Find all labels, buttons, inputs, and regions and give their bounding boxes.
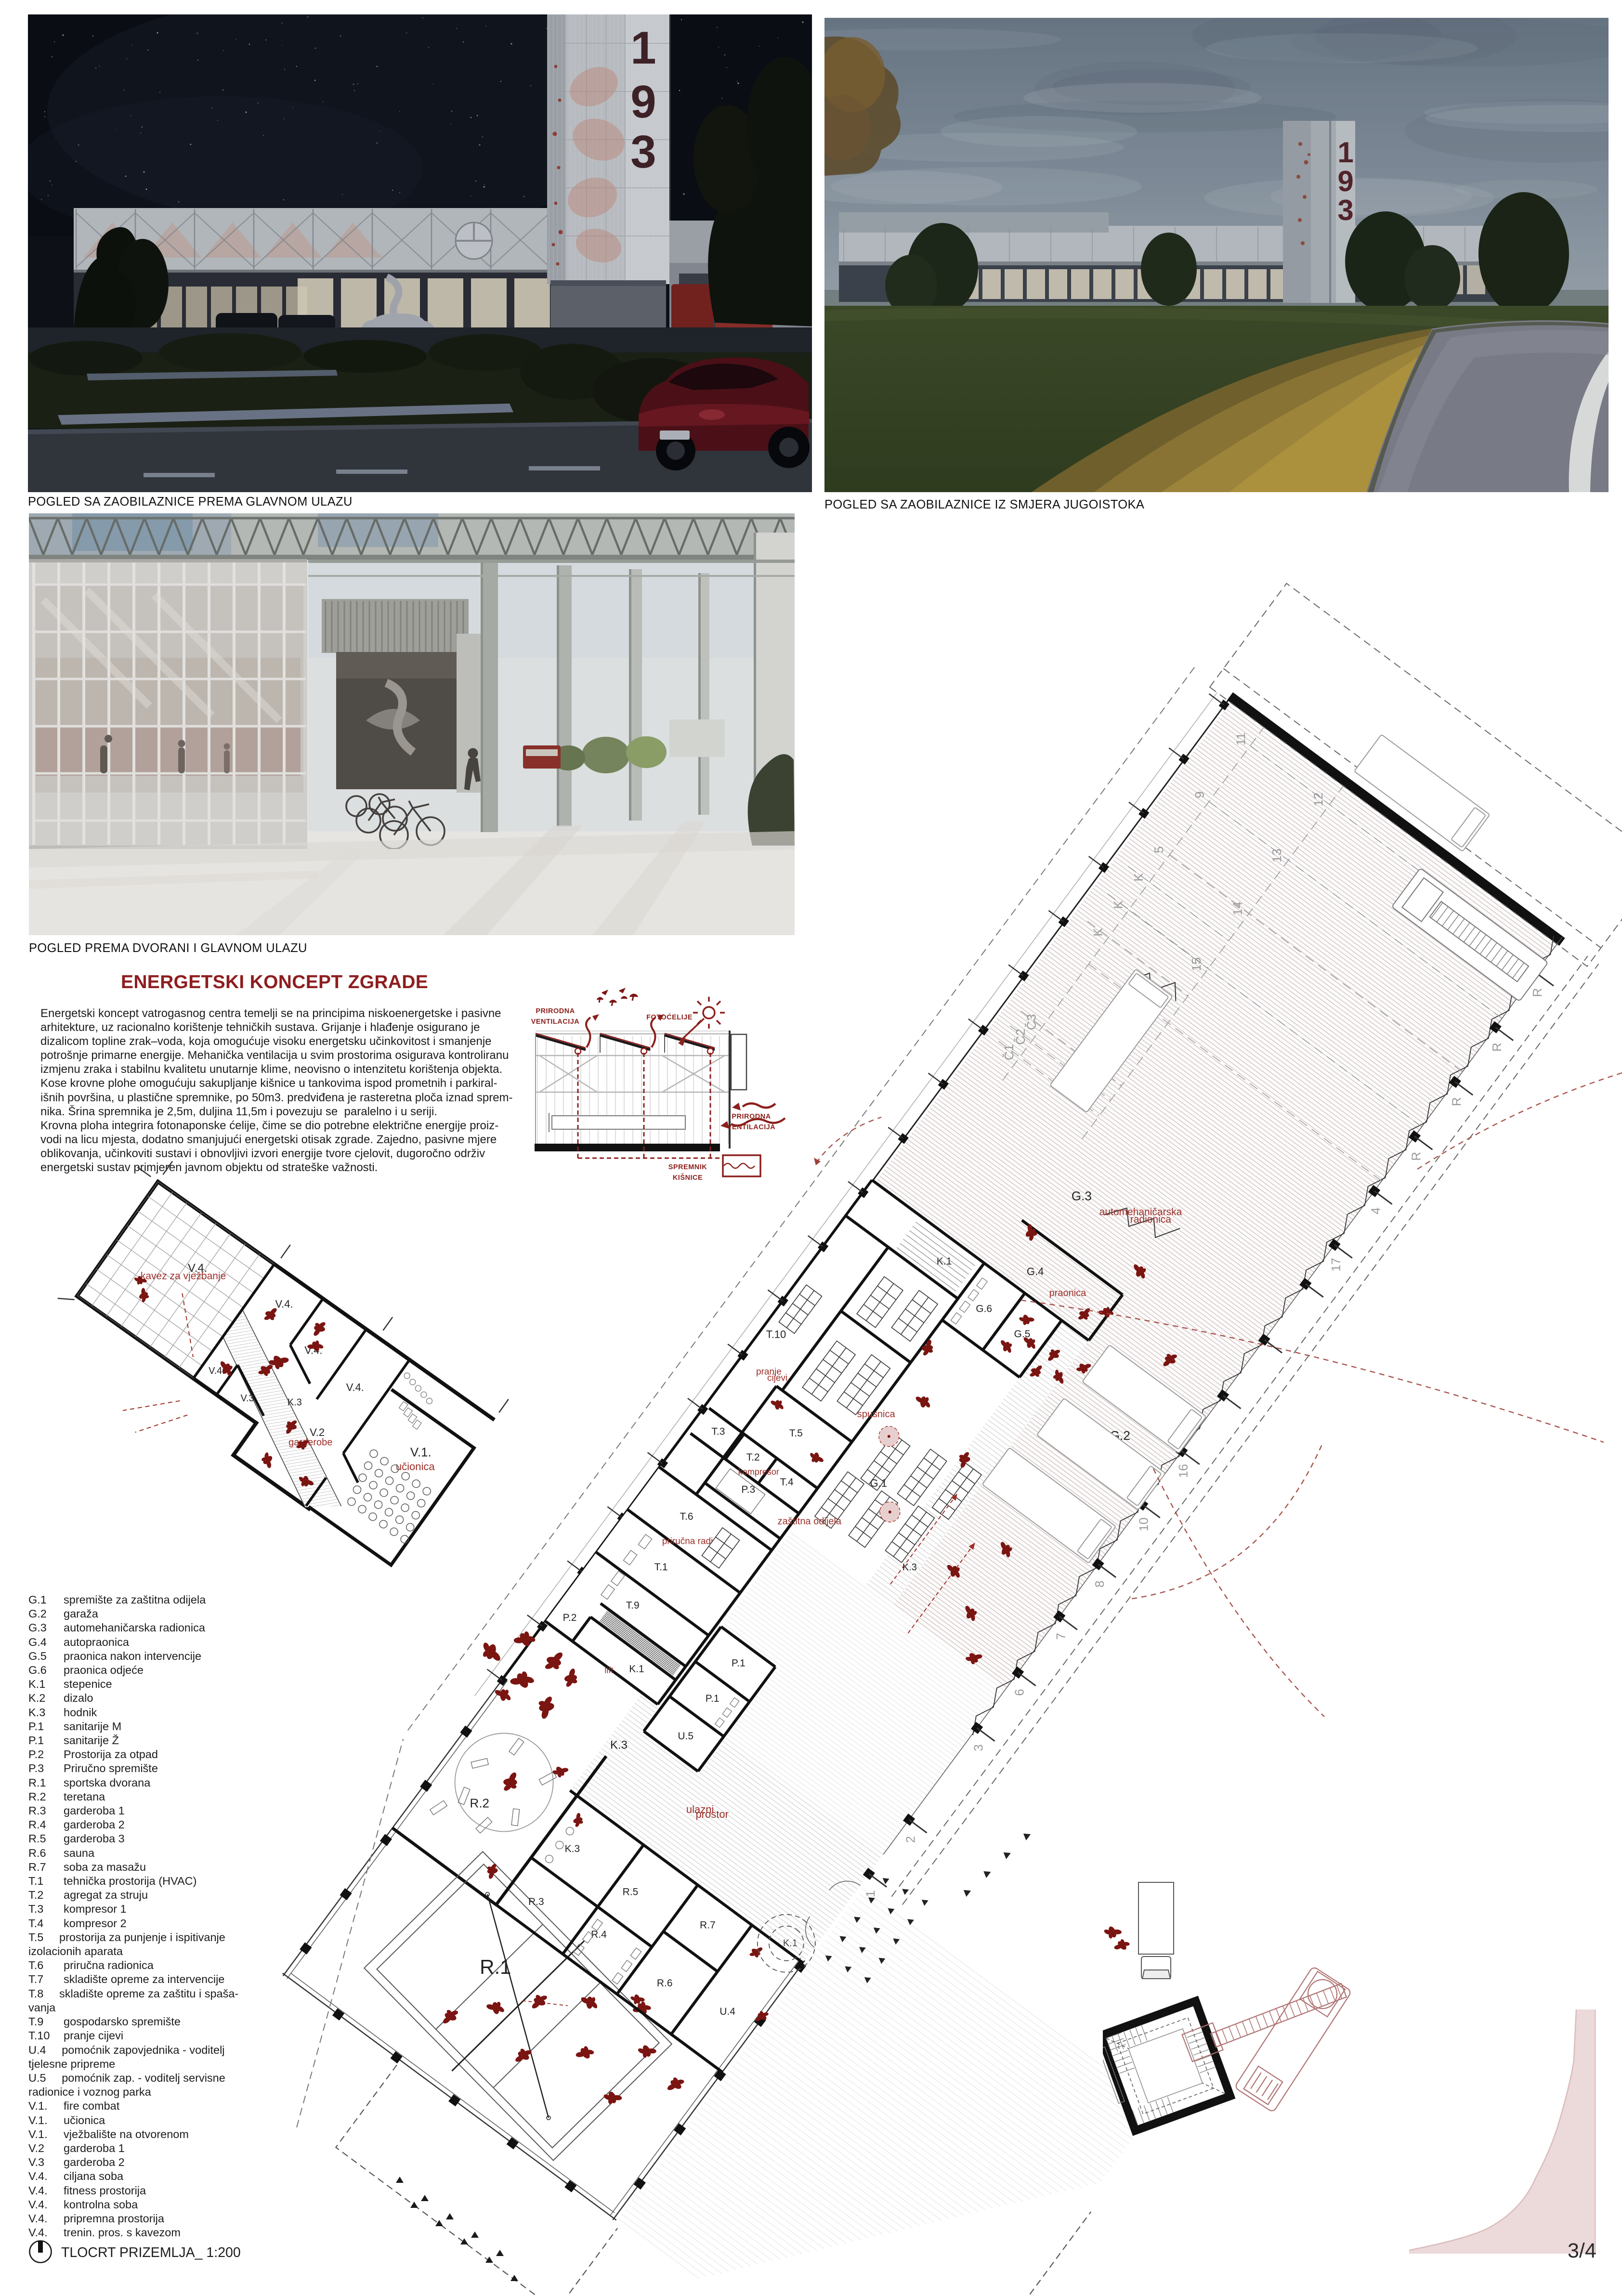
svg-text:K.3: K.3 bbox=[903, 1562, 917, 1573]
svg-text:6: 6 bbox=[1012, 1689, 1026, 1696]
svg-text:15: 15 bbox=[1189, 957, 1203, 971]
svg-text:G.3: G.3 bbox=[1072, 1189, 1092, 1203]
svg-text:VENTILACIJA: VENTILACIJA bbox=[727, 1123, 776, 1131]
svg-text:K: K bbox=[1090, 927, 1105, 936]
svg-text:11: 11 bbox=[1233, 732, 1248, 745]
svg-text:R.7: R.7 bbox=[700, 1919, 716, 1931]
svg-text:R: R bbox=[1449, 1097, 1464, 1106]
svg-text:V.2: V.2 bbox=[310, 1426, 325, 1438]
svg-text:garderobe: garderobe bbox=[288, 1437, 332, 1448]
svg-text:3: 3 bbox=[971, 1744, 985, 1751]
svg-text:T.9: T.9 bbox=[626, 1600, 640, 1611]
svg-text:G.4: G.4 bbox=[1027, 1265, 1044, 1278]
svg-text:12: 12 bbox=[1311, 793, 1325, 807]
svg-text:T.2: T.2 bbox=[746, 1452, 760, 1463]
svg-text:T.5: T.5 bbox=[789, 1428, 803, 1439]
svg-text:U.4: U.4 bbox=[719, 2006, 735, 2017]
svg-text:R.5: R.5 bbox=[623, 1886, 639, 1897]
svg-text:2: 2 bbox=[903, 1836, 917, 1843]
svg-text:G.6: G.6 bbox=[976, 1304, 992, 1315]
svg-text:K.1: K.1 bbox=[783, 1938, 798, 1949]
svg-text:R: R bbox=[1530, 988, 1544, 997]
svg-text:U.5: U.5 bbox=[678, 1731, 693, 1742]
svg-text:R.1: R.1 bbox=[480, 1956, 511, 1978]
svg-text:V.3: V.3 bbox=[240, 1393, 254, 1404]
svg-text:1: 1 bbox=[863, 1890, 877, 1897]
svg-text:Č3: Č3 bbox=[1024, 1014, 1038, 1031]
svg-text:T.10: T.10 bbox=[766, 1328, 786, 1340]
svg-text:T.1: T.1 bbox=[654, 1562, 668, 1573]
svg-text:K.3: K.3 bbox=[288, 1397, 302, 1408]
svg-text:9: 9 bbox=[1192, 791, 1207, 798]
svg-text:7: 7 bbox=[1054, 1633, 1068, 1640]
svg-text:17: 17 bbox=[1329, 1258, 1343, 1272]
svg-text:prostor: prostor bbox=[695, 1808, 728, 1820]
svg-text:16: 16 bbox=[1176, 1464, 1190, 1478]
svg-text:14: 14 bbox=[1230, 901, 1244, 915]
svg-text:K.3: K.3 bbox=[610, 1739, 628, 1752]
svg-text:radionica: radionica bbox=[1130, 1214, 1172, 1225]
svg-text:R: R bbox=[1490, 1043, 1504, 1052]
svg-text:K: K bbox=[1131, 873, 1146, 881]
svg-text:13: 13 bbox=[1269, 848, 1284, 862]
svg-text:Č1: Č1 bbox=[1002, 1044, 1016, 1060]
svg-text:5: 5 bbox=[1151, 846, 1166, 853]
svg-text:T.3: T.3 bbox=[711, 1426, 725, 1437]
svg-text:8: 8 bbox=[1092, 1580, 1107, 1588]
svg-text:praonica: praonica bbox=[1049, 1288, 1087, 1298]
svg-text:zaštitna odijela: zaštitna odijela bbox=[778, 1516, 842, 1527]
svg-text:T.6: T.6 bbox=[680, 1511, 693, 1522]
svg-text:R.6: R.6 bbox=[657, 1978, 673, 1989]
svg-text:R.4: R.4 bbox=[591, 1929, 607, 1940]
svg-text:V.1.: V.1. bbox=[410, 1445, 432, 1459]
svg-text:4: 4 bbox=[1368, 1207, 1383, 1214]
svg-text:10: 10 bbox=[1136, 1517, 1151, 1531]
svg-text:K.3: K.3 bbox=[565, 1843, 580, 1854]
svg-text:Č2: Č2 bbox=[1013, 1029, 1028, 1045]
svg-text:V.4.: V.4. bbox=[346, 1381, 364, 1393]
svg-text:T.4: T.4 bbox=[780, 1477, 794, 1488]
svg-text:kavez za vježbanje: kavez za vježbanje bbox=[141, 1271, 226, 1282]
svg-text:P.1: P.1 bbox=[706, 1693, 719, 1704]
svg-text:učionica: učionica bbox=[396, 1461, 435, 1473]
svg-text:kompresor: kompresor bbox=[738, 1467, 779, 1477]
svg-text:cijevi: cijevi bbox=[767, 1373, 787, 1383]
svg-text:SPREMNIK: SPREMNIK bbox=[668, 1163, 707, 1171]
svg-text:VENTILACIJA: VENTILACIJA bbox=[531, 1018, 580, 1026]
svg-text:lift: lift bbox=[604, 1665, 613, 1675]
svg-text:FOTOĆELIJE: FOTOĆELIJE bbox=[646, 1013, 693, 1021]
svg-text:R.2: R.2 bbox=[470, 1796, 489, 1810]
svg-text:K: K bbox=[1111, 900, 1125, 909]
svg-text:spusnica: spusnica bbox=[857, 1409, 896, 1420]
svg-text:P.1: P.1 bbox=[732, 1658, 746, 1669]
svg-text:PRIRODNA: PRIRODNA bbox=[732, 1113, 771, 1121]
svg-text:G.1: G.1 bbox=[870, 1477, 887, 1489]
svg-text:V.4.: V.4. bbox=[275, 1298, 293, 1310]
svg-text:G.5: G.5 bbox=[1014, 1329, 1031, 1340]
svg-text:KIŠNICE: KIŠNICE bbox=[673, 1173, 703, 1182]
svg-text:P.2: P.2 bbox=[563, 1612, 577, 1623]
svg-text:R: R bbox=[1409, 1152, 1423, 1161]
svg-text:R.3: R.3 bbox=[528, 1896, 544, 1907]
svg-text:PRIRODNA: PRIRODNA bbox=[536, 1007, 575, 1015]
svg-text:K.1: K.1 bbox=[629, 1663, 644, 1674]
